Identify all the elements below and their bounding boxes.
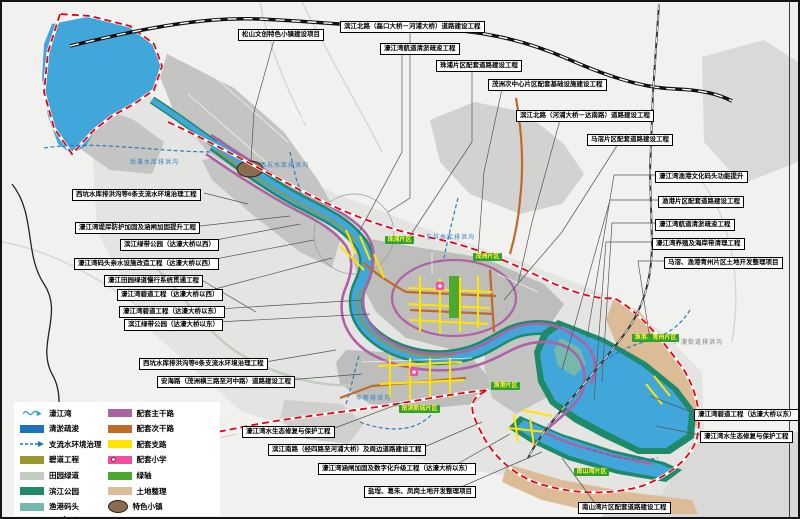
- callout-label: 西坑水库排洪沟等6条支流水环境治理工程: [139, 358, 268, 370]
- legend-row-secondary-road: 配套次干路: [108, 422, 175, 436]
- callout-label: 濠江湾水生态修复与保护工程: [242, 426, 335, 438]
- callout-label: 马滘片区配套道路建设工程: [587, 134, 673, 146]
- legend-row-main-road: 配套主干路: [108, 406, 175, 420]
- legend-label: 特色小镇: [133, 501, 163, 512]
- legend-label: 濠江湾: [49, 408, 72, 419]
- wharf-bar-icon: [20, 503, 44, 511]
- district-badge: 渔港片区: [491, 382, 520, 390]
- district-badge: 南滨新城片区: [399, 405, 440, 413]
- main-road-bar-icon: [108, 409, 132, 417]
- stream-label: 广澳街道排洪沟: [674, 337, 723, 346]
- garden-greenway-bar-icon: [20, 472, 44, 480]
- callout-label: 濠江湾航道清淤疏浚工程: [380, 43, 460, 55]
- legend-row-garden-greenway: 田园绿道: [20, 469, 102, 483]
- legend-label: 配套主干路: [137, 408, 175, 419]
- dredge-bar-icon: [20, 425, 44, 433]
- stream-label: 东坑水库排洪沟: [426, 232, 475, 241]
- callout-label: 滨江绿带公园（达濠大桥以东）: [124, 319, 223, 331]
- callout-label: 滨江北路（磊口大桥－河浦大桥）道路建设工程: [340, 21, 485, 33]
- tributary-arrow-icon: [20, 440, 44, 448]
- callout-label: 茂洲次中心片区配套基础设施建设工程: [488, 79, 607, 91]
- legend-left-column: 濠江湾 清淤疏浚 支流水环境治理 碧道工程 田园绿道 滨江公园 渔港码头: [20, 406, 108, 514]
- riverside-park-bar-icon: [20, 487, 44, 495]
- featured-town-ellipse-icon: [108, 500, 128, 513]
- callout-label: 安海路（茂洲横三路至河中路）道路建设工程: [157, 376, 295, 388]
- legend-label: 渔港码头: [49, 501, 79, 512]
- stream-label: 西坑水库排洪沟: [260, 160, 309, 169]
- planning-map: 松山文创特色小镇建设项目 滨江北路（磊口大桥－河浦大桥）道路建设工程 濠江湾航道…: [0, 0, 800, 519]
- green-axis: [449, 276, 459, 318]
- land-consolidation-bar-icon: [108, 487, 132, 495]
- stream-label: 后溪水库排洪沟: [130, 157, 179, 166]
- branch-road-bar-icon: [108, 440, 132, 448]
- callout-label: 松山文创特色小镇建设项目: [238, 29, 324, 41]
- callout-label: 濠江湾码头亲水设施改造工程（达濠大桥以西）: [74, 258, 219, 270]
- legend-row-tributary: 支流水环境治理: [20, 437, 102, 451]
- legend-label: 绿轴: [137, 470, 152, 481]
- legend-label: 滨江公园: [49, 486, 79, 497]
- legend-row-featured-town: 特色小镇: [108, 500, 175, 514]
- legend-row-riverside-park: 滨江公园: [20, 484, 102, 498]
- legend-label: 碧道工程: [49, 454, 79, 465]
- legend-row-bay: 濠江湾: [20, 406, 102, 420]
- bay-wave-icon: [20, 409, 44, 417]
- bidao-bar-icon: [20, 456, 44, 464]
- secondary-road-bar-icon: [108, 425, 132, 433]
- callout-label: 濠江湾涵闸加固及数字化升级工程（达濠大桥以东）: [318, 463, 476, 475]
- callout-label: 珠浦片区配套道路建设工程: [436, 60, 522, 72]
- callout-label: 滨江北路（河浦大桥－达南路）道路建设工程: [516, 110, 654, 122]
- legend-row-branch-road: 配套支路: [108, 437, 175, 451]
- callout-label: 濠江田园绿道慢行系统贯通工程: [104, 275, 203, 287]
- legend-right-column: 配套主干路 配套次干路 配套支路 配套小学 绿轴 土地整理 特色小镇: [108, 406, 181, 514]
- legend-row-dredge: 清淤疏浚: [20, 422, 102, 436]
- district-badge: 珠浦片区: [385, 236, 414, 244]
- stream-label: 华新排洪沟: [356, 393, 391, 402]
- callout-label: 濠江湾养殖及海岸带清理工程: [652, 238, 745, 250]
- callout-label: 滨江绿带公园（达濠大桥以西）: [120, 239, 219, 251]
- legend-label: 田园绿道: [49, 470, 79, 481]
- callout-label: 濠江湾碧道工程（达濠大桥以东）: [694, 409, 800, 421]
- callout-label: 濠江湾航道清淤疏浚工程: [655, 219, 735, 231]
- legend-label: 支流水环境治理: [49, 439, 102, 450]
- legend-label: 配套支路: [137, 439, 167, 450]
- legend-label: 配套小学: [137, 454, 167, 465]
- green-axis-bar-icon: [108, 472, 132, 480]
- callout-label: 濠江湾堤岸防护加固及涵闸加固提升工程: [75, 222, 200, 234]
- legend-row-green-axis: 绿轴: [108, 469, 175, 483]
- callout-label: 濠江湾水生态修复与保护工程: [700, 431, 793, 443]
- district-badge: 渔港、青州片区: [632, 334, 679, 342]
- legend: 濠江湾 清淤疏浚 支流水环境治理 碧道工程 田园绿道 滨江公园 渔港码头: [14, 402, 220, 516]
- callout-label: 濠江湾碧道工程（达濠大桥以西）: [117, 289, 223, 301]
- callout-label: 濠江湾渔港文化码头功能提升: [655, 171, 748, 183]
- legend-row-school: 配套小学: [108, 453, 175, 467]
- callout-label: 濠江湾碧道工程（达濠大桥以东）: [119, 306, 225, 318]
- district-badge: 茂洲片区: [473, 253, 502, 261]
- callout-label: 盐埕、葛朱、凤岗土地开发整理项目: [364, 486, 476, 498]
- legend-row-bidao: 碧道工程: [20, 453, 102, 467]
- callout-label: 滨江南路（经四路至河浦大桥）及周边道路建设工程: [268, 444, 426, 456]
- district-badge: 南山湾片区: [574, 468, 609, 476]
- legend-label: 土地整理: [137, 486, 167, 497]
- legend-row-land-consolidation: 土地整理: [108, 484, 175, 498]
- legend-row-wharf: 渔港码头: [20, 500, 102, 514]
- legend-label: 清淤疏浚: [49, 423, 79, 434]
- callout-label: 渔港片区配套道路建设工程: [658, 196, 744, 208]
- legend-label: 配套次干路: [137, 423, 175, 434]
- callout-label: 西坑水库排洪沟等6条支流水环境治理工程: [72, 189, 201, 201]
- callout-label: 马滘、渔港青州片区土地开发整理项目: [664, 257, 783, 269]
- callout-label: 南山湾片区配套道路建设工程: [578, 502, 671, 514]
- school-bar-icon: [108, 456, 132, 464]
